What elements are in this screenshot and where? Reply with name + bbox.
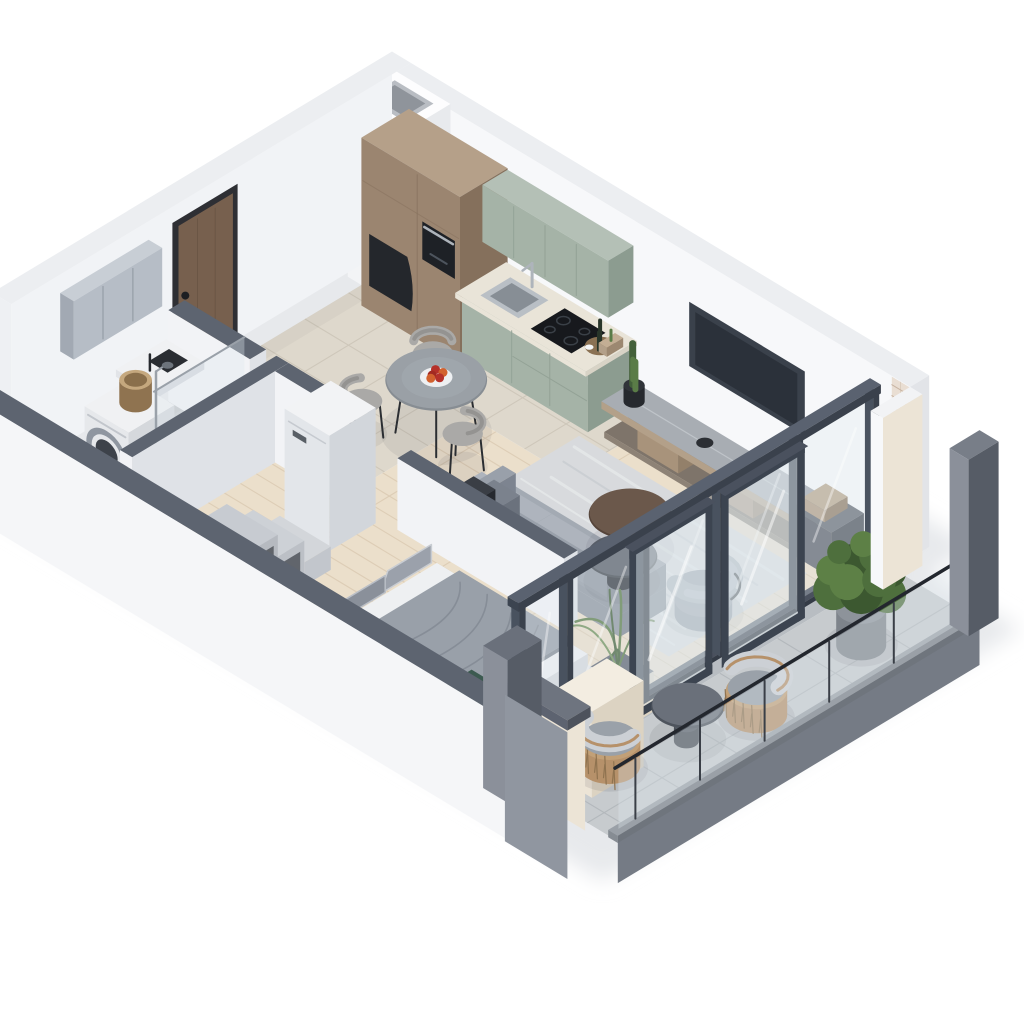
side	[969, 442, 999, 637]
foliage	[829, 564, 865, 600]
burner	[579, 328, 590, 334]
balcony-north-pillar	[950, 430, 999, 636]
front	[483, 646, 508, 803]
apartment-scene-canvas	[0, 0, 1024, 1024]
apple	[435, 373, 444, 382]
shower-head	[162, 362, 174, 369]
front	[950, 448, 969, 636]
facet	[722, 490, 729, 668]
foliage	[827, 540, 851, 564]
decor-bowl	[696, 438, 713, 448]
door-handle	[181, 292, 189, 300]
facet	[798, 444, 805, 622]
facet	[706, 500, 713, 678]
wicker-basket	[119, 370, 152, 412]
front	[712, 484, 720, 657]
front	[871, 411, 883, 590]
cup	[585, 345, 594, 350]
disc	[124, 373, 147, 387]
apple	[426, 374, 435, 383]
cream-return-wall	[871, 387, 923, 590]
fridge-body	[285, 381, 376, 551]
front	[60, 293, 74, 360]
burner	[557, 317, 570, 325]
balcony-north-return	[871, 387, 923, 590]
burner	[564, 337, 577, 345]
burner	[545, 326, 556, 332]
fridge-cabinet	[285, 381, 376, 551]
side	[883, 394, 922, 589]
apartment-isometric-floor-plan-render	[0, 0, 1024, 1024]
